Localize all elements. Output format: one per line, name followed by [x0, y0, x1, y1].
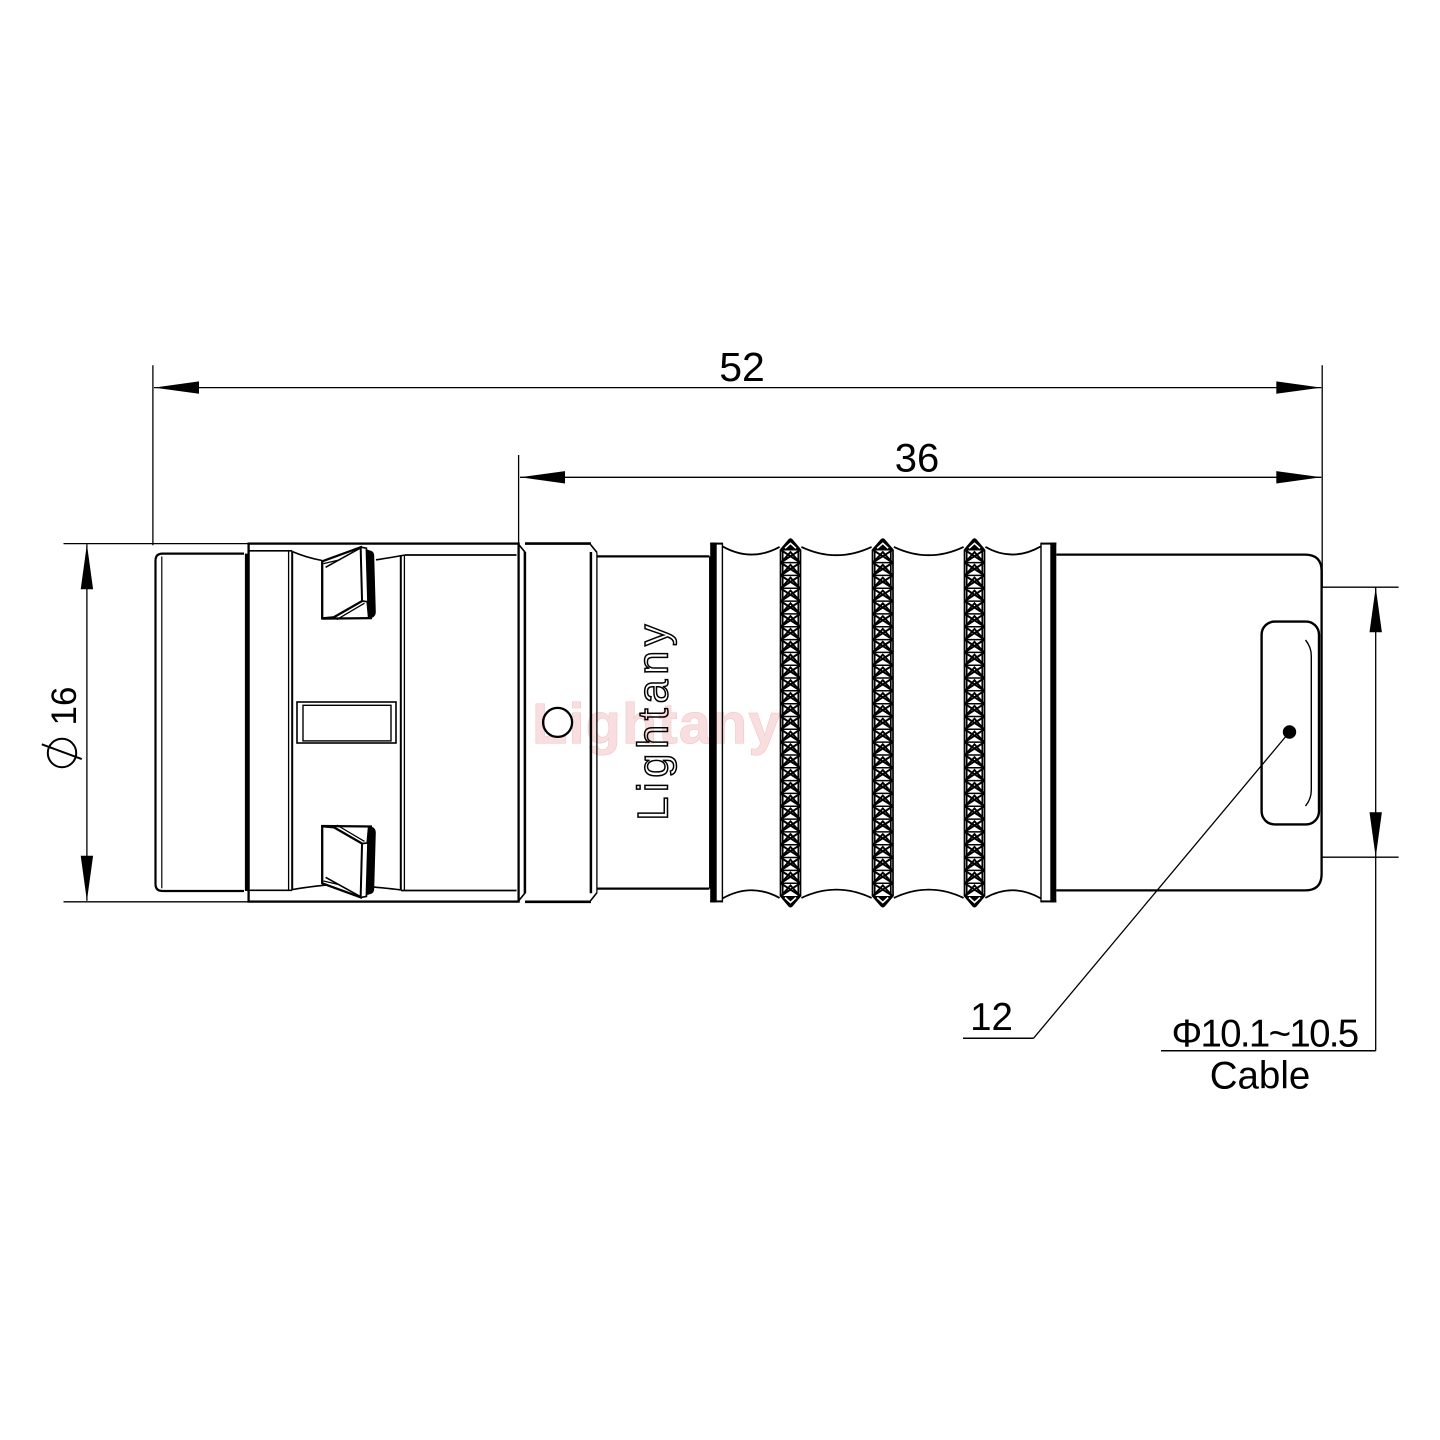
svg-text:16: 16: [45, 687, 84, 726]
svg-text:Φ10.1~10.5: Φ10.1~10.5: [1171, 1013, 1357, 1056]
svg-text:36: 36: [895, 437, 940, 481]
svg-text:12: 12: [970, 996, 1013, 1039]
svg-text:Lightany: Lightany: [630, 620, 678, 821]
svg-text:Cable: Cable: [1210, 1055, 1311, 1098]
svg-text:52: 52: [719, 344, 765, 390]
